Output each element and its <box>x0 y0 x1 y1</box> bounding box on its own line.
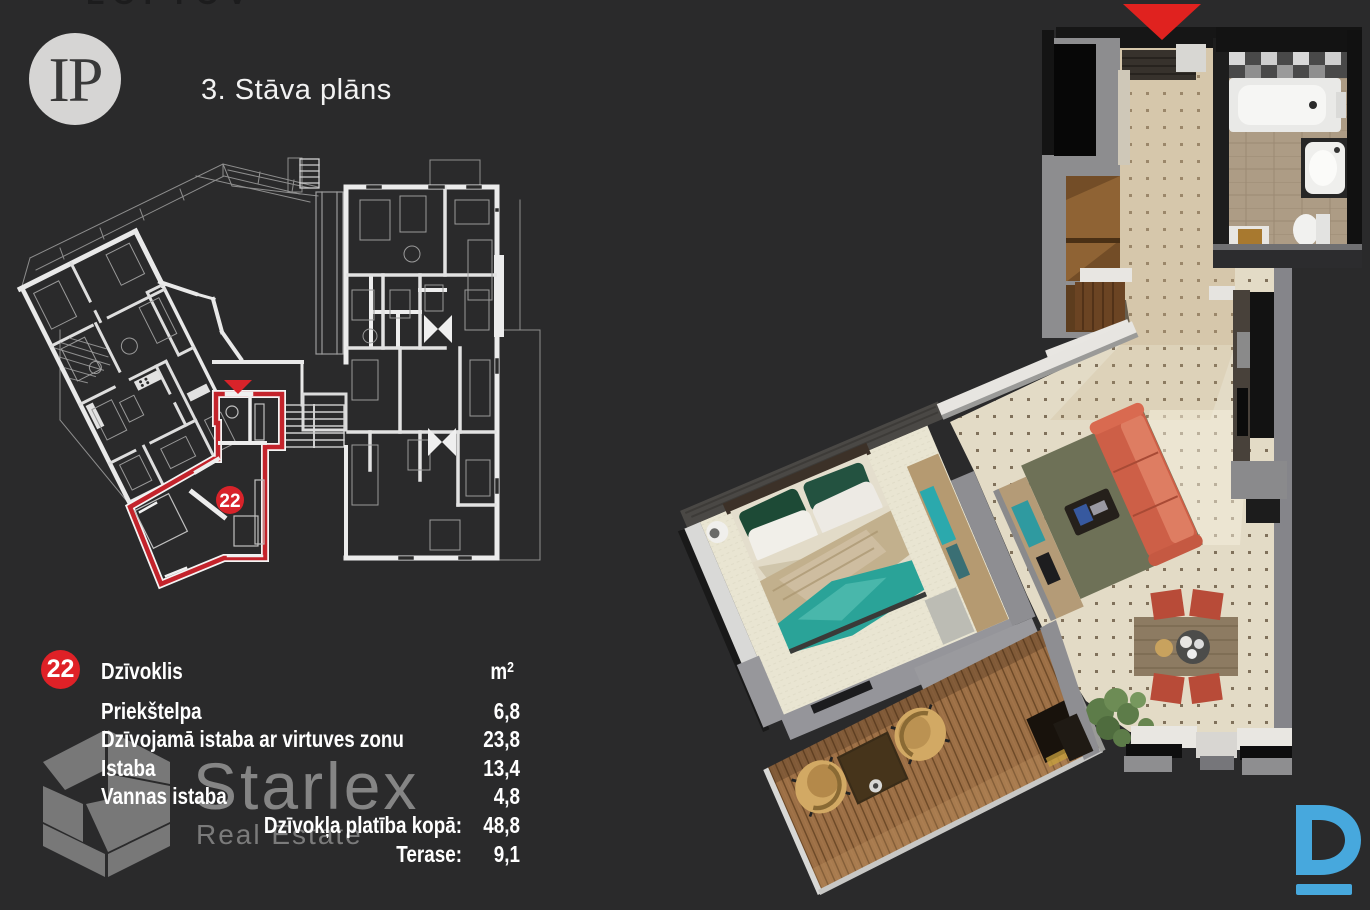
svg-text:22: 22 <box>219 491 240 512</box>
